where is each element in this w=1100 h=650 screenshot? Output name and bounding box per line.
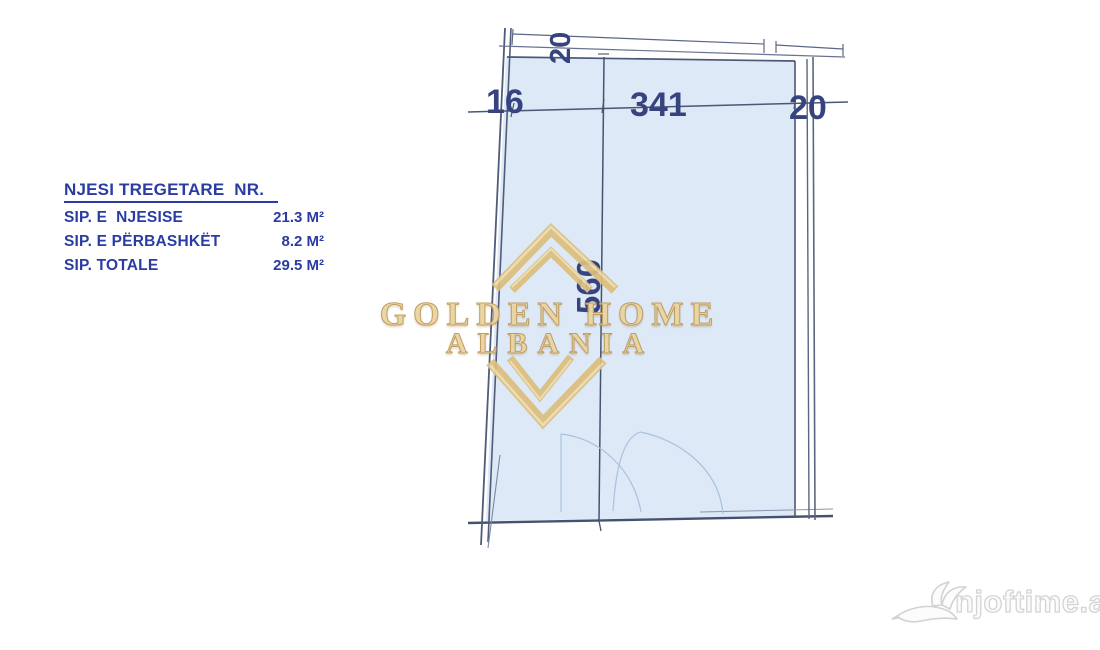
- dim-right-wall-label: 20: [789, 89, 827, 127]
- floorplan-drawing: 16 341 20 20 560: [0, 0, 1100, 650]
- dim-width-label: 341: [630, 86, 687, 124]
- info-value: 8.2 M²: [281, 233, 324, 250]
- dim-tick: [599, 521, 601, 531]
- dim-top-wall-label: 20: [545, 32, 577, 64]
- dim-height-label: 560: [570, 259, 607, 314]
- info-label: SIP. E NJESISE: [64, 209, 183, 227]
- dim-left-label: 16: [486, 83, 524, 121]
- right-wall-mid: [807, 59, 809, 519]
- top-dim-line-b: [776, 45, 843, 49]
- info-row-total-area: SIP. TOTALE 29.5 M²: [64, 257, 324, 275]
- info-value: 21.3 M²: [273, 209, 324, 226]
- info-value: 29.5 M²: [273, 257, 324, 274]
- info-row-common-area: SIP. E PËRBASHKËT 8.2 M²: [64, 233, 324, 251]
- room-area: [486, 57, 795, 521]
- info-label: SIP. TOTALE: [64, 257, 158, 275]
- unit-title: NJESI TREGETARE NR.: [64, 180, 278, 203]
- unit-info-panel: NJESI TREGETARE NR. SIP. E NJESISE 21.3 …: [64, 180, 324, 275]
- info-row-unit-area: SIP. E NJESISE 21.3 M²: [64, 209, 324, 227]
- info-label: SIP. E PËRBASHKËT: [64, 233, 220, 251]
- dim-tick: [512, 29, 513, 45]
